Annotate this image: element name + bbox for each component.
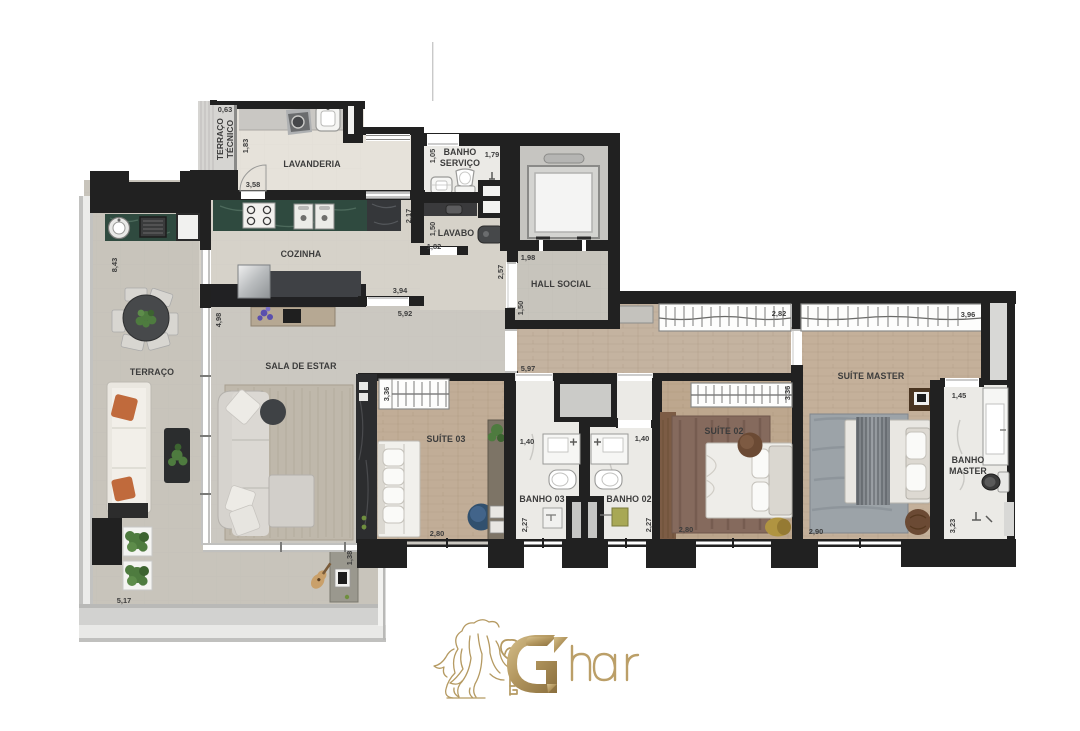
svg-text:3,23: 3,23 xyxy=(948,519,957,533)
svg-text:MASTER: MASTER xyxy=(949,466,987,476)
svg-text:TÉCNICO: TÉCNICO xyxy=(224,119,235,158)
svg-text:3,36: 3,36 xyxy=(783,386,792,400)
svg-text:1,82: 1,82 xyxy=(427,242,441,251)
svg-text:1,45: 1,45 xyxy=(952,391,966,400)
svg-text:1,05: 1,05 xyxy=(428,149,437,163)
svg-text:BANHO 02: BANHO 02 xyxy=(606,494,651,504)
svg-text:5,92: 5,92 xyxy=(398,309,412,318)
svg-text:2,80: 2,80 xyxy=(679,525,693,534)
svg-text:TERRAÇO: TERRAÇO xyxy=(130,367,174,377)
svg-text:COZINHA: COZINHA xyxy=(281,249,322,259)
svg-text:SUÍTE MASTER: SUÍTE MASTER xyxy=(838,371,905,381)
svg-text:SALA DE ESTAR: SALA DE ESTAR xyxy=(265,361,337,371)
svg-text:0,63: 0,63 xyxy=(218,105,232,114)
svg-text:4,98: 4,98 xyxy=(214,313,223,327)
svg-text:2,27: 2,27 xyxy=(520,518,529,532)
svg-text:2,82: 2,82 xyxy=(772,309,786,318)
svg-text:LAVABO: LAVABO xyxy=(438,228,474,238)
svg-text:5,17: 5,17 xyxy=(117,596,131,605)
svg-text:2,27: 2,27 xyxy=(644,518,653,532)
svg-text:2,90: 2,90 xyxy=(809,527,823,536)
svg-text:1,50: 1,50 xyxy=(428,222,437,236)
svg-text:1,40: 1,40 xyxy=(520,437,534,446)
svg-text:1,38: 1,38 xyxy=(345,551,354,565)
svg-text:1,79: 1,79 xyxy=(485,150,499,159)
svg-text:3,58: 3,58 xyxy=(246,180,260,189)
svg-text:2,17: 2,17 xyxy=(404,209,413,223)
svg-text:SUÍTE 03: SUÍTE 03 xyxy=(427,434,466,444)
svg-text:SERVIÇO: SERVIÇO xyxy=(440,158,480,168)
svg-text:LAVANDERIA: LAVANDERIA xyxy=(283,159,341,169)
svg-text:1,40: 1,40 xyxy=(635,434,649,443)
svg-text:TERRAÇO: TERRAÇO xyxy=(215,118,225,160)
svg-text:2,80: 2,80 xyxy=(430,529,444,538)
svg-text:2,57: 2,57 xyxy=(496,265,505,279)
svg-text:8,43: 8,43 xyxy=(110,258,119,272)
svg-text:SUÍTE 02: SUÍTE 02 xyxy=(705,426,744,436)
svg-text:3,36: 3,36 xyxy=(382,387,391,401)
svg-text:3,94: 3,94 xyxy=(393,286,408,295)
svg-text:3,96: 3,96 xyxy=(961,310,975,319)
svg-text:1,83: 1,83 xyxy=(241,139,250,153)
svg-text:HALL SOCIAL: HALL SOCIAL xyxy=(531,279,592,289)
svg-text:BANHO 03: BANHO 03 xyxy=(519,494,564,504)
svg-text:1,50: 1,50 xyxy=(516,301,525,315)
svg-text:BANHO: BANHO xyxy=(952,455,985,465)
svg-text:5,97: 5,97 xyxy=(521,364,535,373)
svg-text:BANHO: BANHO xyxy=(444,147,477,157)
svg-text:1,98: 1,98 xyxy=(521,253,535,262)
